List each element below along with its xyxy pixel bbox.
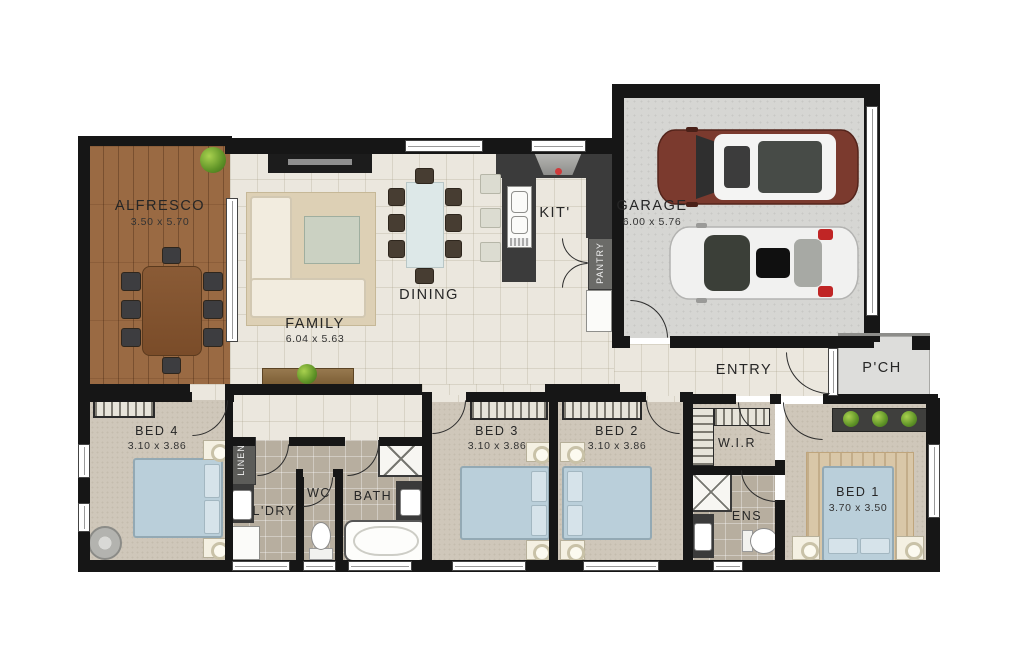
dining-chair [445, 240, 462, 258]
room-label-linen: LINEN [236, 444, 246, 476]
room-label-bed3: BED 3 [475, 424, 519, 438]
wall [466, 392, 555, 402]
room-label-entry: ENTRY [716, 362, 772, 378]
cooktop-burner [555, 168, 562, 175]
plant-icon [200, 147, 226, 173]
garage-door [866, 106, 878, 316]
wall [296, 469, 303, 477]
wall [770, 394, 781, 404]
room-label-bed2: BED 2 [595, 424, 639, 438]
suv-car [656, 126, 860, 208]
outdoor-chair [121, 328, 141, 347]
wall [549, 392, 558, 562]
room-label-family: FAMILY [285, 316, 345, 332]
room-label-wir: W.I.R [718, 436, 756, 450]
coffee-table [304, 216, 360, 264]
window [531, 140, 586, 152]
bedside-table [526, 540, 551, 560]
pillow [567, 505, 583, 536]
wall [422, 392, 432, 402]
sofa [250, 278, 366, 318]
pillow [204, 464, 220, 498]
sink-drainer [510, 238, 529, 246]
pillow [567, 471, 583, 502]
wall [670, 336, 874, 348]
wall [225, 392, 233, 572]
wall [335, 477, 343, 562]
porch-edge [838, 333, 930, 336]
room-label-bed4: BED 4 [135, 424, 179, 438]
wall [78, 136, 232, 146]
window [713, 561, 743, 571]
room-label-bed1: BED 1 [836, 485, 880, 499]
outdoor-table [142, 266, 202, 356]
wall [333, 469, 343, 477]
wall [912, 334, 930, 350]
sink-bowl [511, 216, 528, 234]
room-dims-family: 6.04 x 5.63 [286, 333, 345, 345]
kitchen-bench [586, 152, 612, 238]
pillow [531, 471, 547, 502]
room-label-laundry: L'DRY [252, 504, 295, 518]
bedside-table [792, 536, 820, 560]
wall [612, 336, 630, 348]
plant-icon [297, 364, 317, 384]
room-dims-bed3: 3.10 x 3.86 [468, 440, 527, 452]
room-dims-bed1: 3.70 x 3.50 [829, 502, 888, 514]
bedside-table [560, 540, 585, 560]
plant-icon [843, 411, 859, 427]
dining-table [406, 182, 444, 268]
room-label-dining: DINING [399, 287, 459, 303]
wall [78, 392, 192, 402]
ens-shower [690, 472, 732, 512]
sink-bowl [511, 191, 528, 213]
outdoor-chair [203, 300, 223, 319]
wall [683, 392, 693, 562]
ceiling-fan-icon [88, 526, 122, 560]
window [452, 561, 526, 571]
dining-chair [415, 168, 434, 184]
room-label-pantry: PANTRY [595, 242, 605, 284]
dining-chair [388, 214, 405, 232]
bedside-table [896, 536, 924, 560]
wall [289, 437, 345, 446]
bedside-table [526, 442, 551, 462]
dining-chair [445, 214, 462, 232]
pillow [531, 505, 547, 536]
laundry-sink [232, 490, 252, 520]
plant-icon [872, 411, 888, 427]
floor-plan: ALFRESCO 3.50 x 5.70 FAMILY 6.04 x 5.63 … [0, 0, 1024, 651]
window [78, 503, 90, 532]
room-label-ens: ENS [732, 509, 762, 523]
room-label-kitchen: KIT' [539, 205, 570, 221]
white-car [668, 222, 860, 304]
bar-stool [480, 208, 501, 228]
room-dims-garage: 6.00 x 5.76 [623, 216, 682, 228]
wall [225, 384, 422, 395]
bathtub [344, 520, 428, 562]
room-dims-alfresco: 3.50 x 5.70 [131, 216, 190, 228]
wall [612, 84, 876, 98]
room-label-garage: GARAGE [616, 198, 687, 214]
dining-chair [388, 240, 405, 258]
pillow [204, 500, 220, 534]
outdoor-chair [162, 247, 181, 264]
room-dims-bed4: 3.10 x 3.86 [128, 440, 187, 452]
sliding-door [226, 198, 238, 342]
vanity-basin [694, 523, 712, 551]
window [232, 561, 290, 571]
outdoor-chair [162, 357, 181, 374]
wall [823, 394, 938, 404]
outdoor-chair [203, 272, 223, 291]
bedside-table [560, 442, 585, 462]
toilet-bowl [311, 522, 331, 550]
plant-icon [901, 411, 917, 427]
bar-stool [480, 174, 501, 194]
bar-stool [480, 242, 501, 262]
wir-shelf [690, 408, 714, 466]
window [928, 444, 940, 518]
wall [78, 384, 190, 392]
room-label-wc: WC [307, 486, 331, 500]
wall [422, 402, 432, 562]
outdoor-chair [121, 300, 141, 319]
window [348, 561, 412, 571]
vanity-basin [400, 489, 421, 516]
wall [775, 500, 785, 562]
window [583, 561, 659, 571]
wall [558, 392, 646, 402]
window [405, 140, 483, 152]
wall [693, 394, 736, 404]
dining-chair [388, 188, 405, 206]
dining-chair [445, 188, 462, 206]
room-label-porch: P'CH [862, 360, 901, 376]
pillow [828, 538, 858, 554]
window [78, 444, 90, 478]
room-label-alfresco: ALFRESCO [115, 198, 205, 214]
dining-chair [415, 268, 434, 284]
outdoor-chair [203, 328, 223, 347]
fridge [586, 290, 612, 332]
tv [288, 159, 352, 165]
outdoor-chair [121, 272, 141, 291]
room-dims-bed2: 3.10 x 3.86 [588, 440, 647, 452]
toilet-bowl [750, 528, 778, 554]
room-label-bath: BATH [354, 489, 392, 503]
window [303, 561, 336, 571]
pillow [860, 538, 890, 554]
